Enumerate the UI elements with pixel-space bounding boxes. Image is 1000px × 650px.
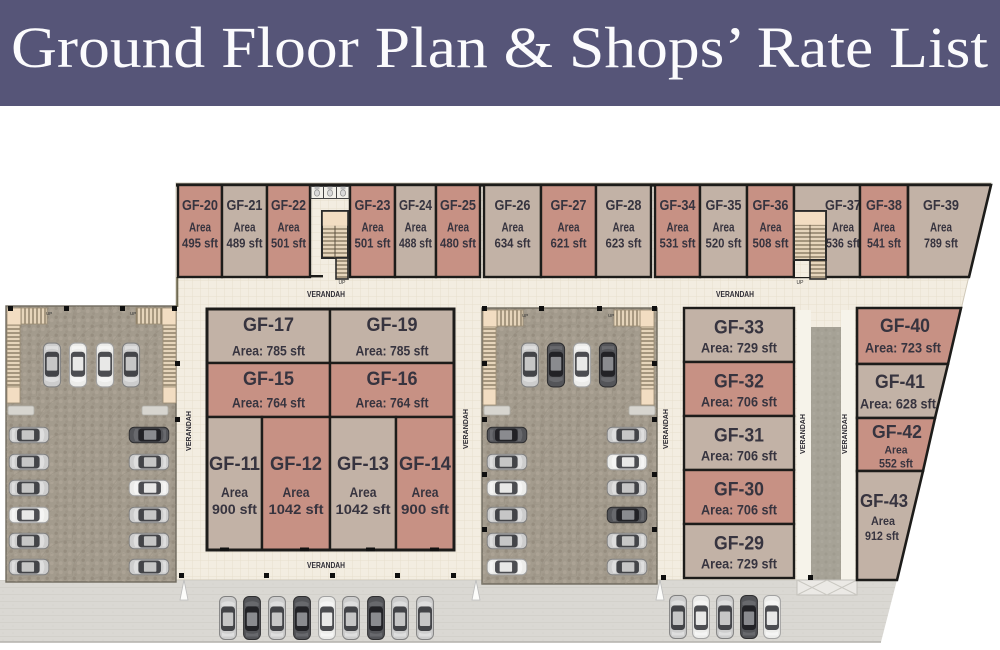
svg-text:508 sft: 508 sft	[753, 237, 790, 251]
svg-text:Area: 729 sft: Area: 729 sft	[701, 341, 777, 356]
svg-text:GF-27: GF-27	[551, 198, 587, 214]
svg-text:501 sft: 501 sft	[271, 237, 307, 251]
svg-text:GF-12: GF-12	[270, 453, 322, 475]
svg-text:GF-43: GF-43	[860, 490, 908, 511]
svg-text:GF-33: GF-33	[714, 317, 764, 339]
svg-text:Area: 706 sft: Area: 706 sft	[701, 449, 777, 464]
svg-text:Area: Area	[221, 485, 248, 500]
svg-text:Area: Area	[760, 221, 783, 235]
svg-text:Area: Area	[234, 221, 257, 235]
svg-text:Area: Area	[613, 221, 636, 235]
svg-text:Area: 729 sft: Area: 729 sft	[701, 557, 777, 572]
svg-text:Area: Area	[502, 221, 525, 235]
svg-text:623 sft: 623 sft	[606, 237, 643, 251]
svg-text:Area: 723 sft: Area: 723 sft	[865, 341, 941, 356]
svg-text:552 sft: 552 sft	[879, 457, 913, 471]
svg-text:Area: Area	[558, 221, 581, 235]
svg-text:912 sft: 912 sft	[865, 529, 899, 543]
svg-text:Area: Area	[871, 516, 896, 528]
svg-text:Area: Area	[405, 221, 428, 235]
svg-text:531 sft: 531 sft	[660, 237, 697, 251]
svg-text:495 sft: 495 sft	[182, 237, 219, 251]
svg-text:541 sft: 541 sft	[867, 237, 902, 251]
svg-text:UP: UP	[608, 313, 614, 318]
svg-text:Area: Area	[350, 485, 377, 500]
svg-text:GF-28: GF-28	[606, 198, 642, 214]
svg-text:1042 sft: 1042 sft	[336, 502, 392, 517]
svg-text:GF-15: GF-15	[243, 368, 294, 390]
svg-text:489 sft: 489 sft	[227, 237, 264, 251]
svg-text:480 sft: 480 sft	[440, 237, 477, 251]
svg-text:GF-13: GF-13	[337, 453, 389, 475]
svg-text:GF-39: GF-39	[923, 198, 959, 214]
svg-text:Area: 785 sft: Area: 785 sft	[232, 343, 305, 359]
svg-text:Area: Area	[283, 485, 310, 500]
svg-text:GF-37: GF-37	[825, 198, 861, 214]
svg-text:536 sft: 536 sft	[826, 237, 861, 251]
svg-text:GF-14: GF-14	[399, 453, 451, 475]
svg-text:GF-23: GF-23	[355, 198, 391, 214]
svg-text:GF-17: GF-17	[243, 314, 294, 336]
svg-text:VERANDAH: VERANDAH	[661, 409, 670, 449]
svg-text:Area: 764 sft: Area: 764 sft	[356, 395, 429, 411]
svg-text:520 sft: 520 sft	[706, 237, 743, 251]
svg-text:GF-32: GF-32	[714, 371, 764, 393]
svg-text:Area: 706 sft: Area: 706 sft	[701, 395, 777, 410]
svg-text:Area: Area	[362, 221, 385, 235]
svg-text:GF-22: GF-22	[271, 198, 306, 214]
svg-text:UP: UP	[46, 311, 52, 316]
svg-text:VERANDAH: VERANDAH	[716, 290, 754, 299]
svg-text:Area: 706 sft: Area: 706 sft	[701, 503, 777, 518]
svg-text:Area: Area	[189, 221, 212, 235]
svg-text:Area: Area	[885, 445, 909, 457]
svg-text:GF-25: GF-25	[440, 198, 476, 214]
svg-text:UP: UP	[339, 280, 347, 286]
svg-text:Area: Area	[412, 485, 439, 500]
svg-text:GF-11: GF-11	[209, 453, 260, 475]
svg-text:VERANDAH: VERANDAH	[798, 414, 807, 454]
svg-text:634 sft: 634 sft	[495, 237, 532, 251]
svg-text:900 sft: 900 sft	[212, 502, 258, 517]
svg-text:GF-26: GF-26	[495, 198, 531, 214]
svg-text:GF-36: GF-36	[753, 198, 789, 214]
svg-text:900 sft: 900 sft	[401, 502, 450, 517]
svg-text:GF-42: GF-42	[872, 421, 922, 442]
svg-text:Area: 785 sft: Area: 785 sft	[356, 343, 429, 359]
svg-text:GF-41: GF-41	[875, 371, 925, 393]
svg-text:VERANDAH: VERANDAH	[307, 561, 345, 570]
svg-text:VERANDAH: VERANDAH	[307, 290, 345, 299]
svg-text:VERANDAH: VERANDAH	[840, 414, 849, 454]
svg-text:789 sft: 789 sft	[924, 237, 959, 251]
svg-text:GF-21: GF-21	[227, 198, 263, 214]
svg-text:GF-30: GF-30	[714, 479, 764, 501]
svg-text:UP: UP	[522, 313, 528, 318]
svg-text:621 sft: 621 sft	[551, 237, 588, 251]
svg-text:Area: Area	[930, 221, 953, 235]
svg-text:VERANDAH: VERANDAH	[184, 411, 193, 451]
svg-text:Ground Floor Plan & Shops’ Rat: Ground Floor Plan & Shops’ Rate List	[11, 15, 988, 80]
svg-text:Area: Area	[667, 221, 690, 235]
svg-text:1042 sft: 1042 sft	[269, 502, 325, 517]
svg-text:GF-19: GF-19	[367, 314, 418, 336]
svg-text:GF-40: GF-40	[880, 315, 930, 337]
svg-text:GF-34: GF-34	[660, 198, 696, 214]
svg-text:488 sft: 488 sft	[399, 237, 433, 251]
svg-text:Area: Area	[873, 221, 896, 235]
svg-text:GF-16: GF-16	[367, 368, 418, 390]
svg-text:GF-35: GF-35	[706, 198, 742, 214]
svg-text:GF-38: GF-38	[866, 198, 902, 214]
svg-text:Area: 764 sft: Area: 764 sft	[232, 395, 305, 411]
svg-text:Area: Area	[447, 221, 470, 235]
svg-text:Area: Area	[713, 221, 736, 235]
svg-text:501 sft: 501 sft	[355, 237, 392, 251]
svg-text:Area: 628 sft: Area: 628 sft	[860, 397, 936, 412]
svg-text:VERANDAH: VERANDAH	[461, 409, 470, 449]
svg-text:Area: Area	[278, 221, 301, 235]
svg-text:GF-20: GF-20	[182, 198, 218, 214]
svg-text:GF-24: GF-24	[399, 198, 432, 214]
svg-text:GF-31: GF-31	[714, 425, 764, 447]
svg-text:Area: Area	[832, 221, 855, 235]
svg-text:GF-29: GF-29	[714, 533, 764, 555]
svg-text:UP: UP	[797, 280, 805, 286]
svg-text:UP: UP	[130, 311, 136, 316]
